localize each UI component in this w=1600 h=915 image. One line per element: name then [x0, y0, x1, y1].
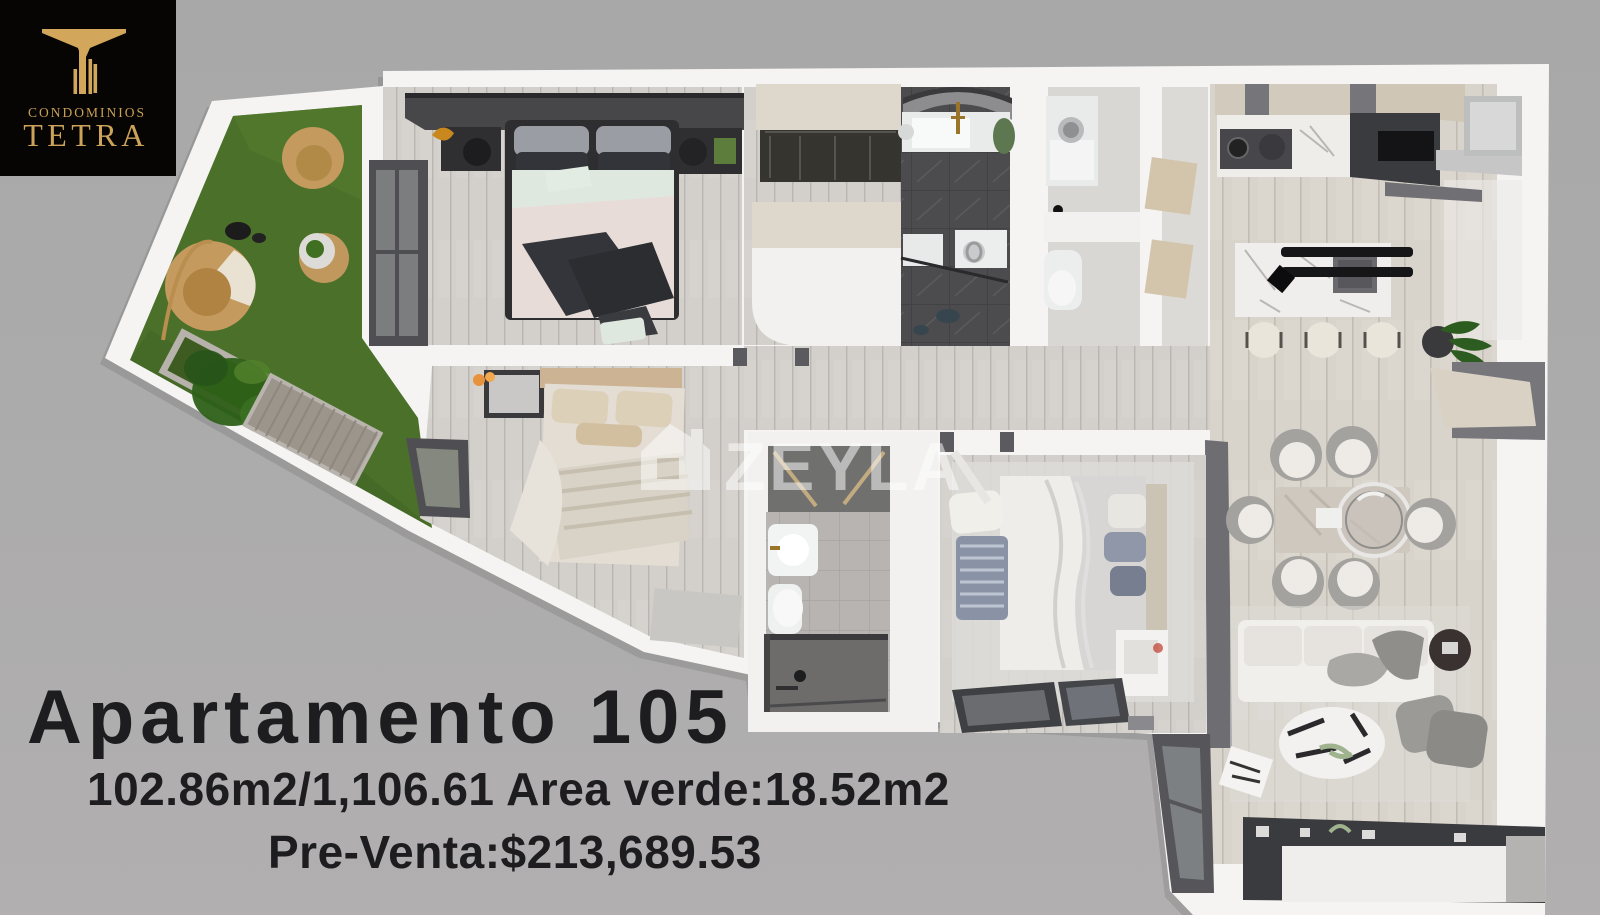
svg-text:Pre-Venta:$213,689.53: Pre-Venta:$213,689.53	[268, 826, 762, 878]
svg-text:Apartamento 105: Apartamento 105	[27, 675, 734, 760]
svg-text:TETRA: TETRA	[23, 117, 149, 153]
svg-text:ZEYLA: ZEYLA	[724, 429, 964, 505]
svg-text:102.86m2/1,106.61 Area verde:1: 102.86m2/1,106.61 Area verde:18.52m2	[87, 763, 950, 815]
